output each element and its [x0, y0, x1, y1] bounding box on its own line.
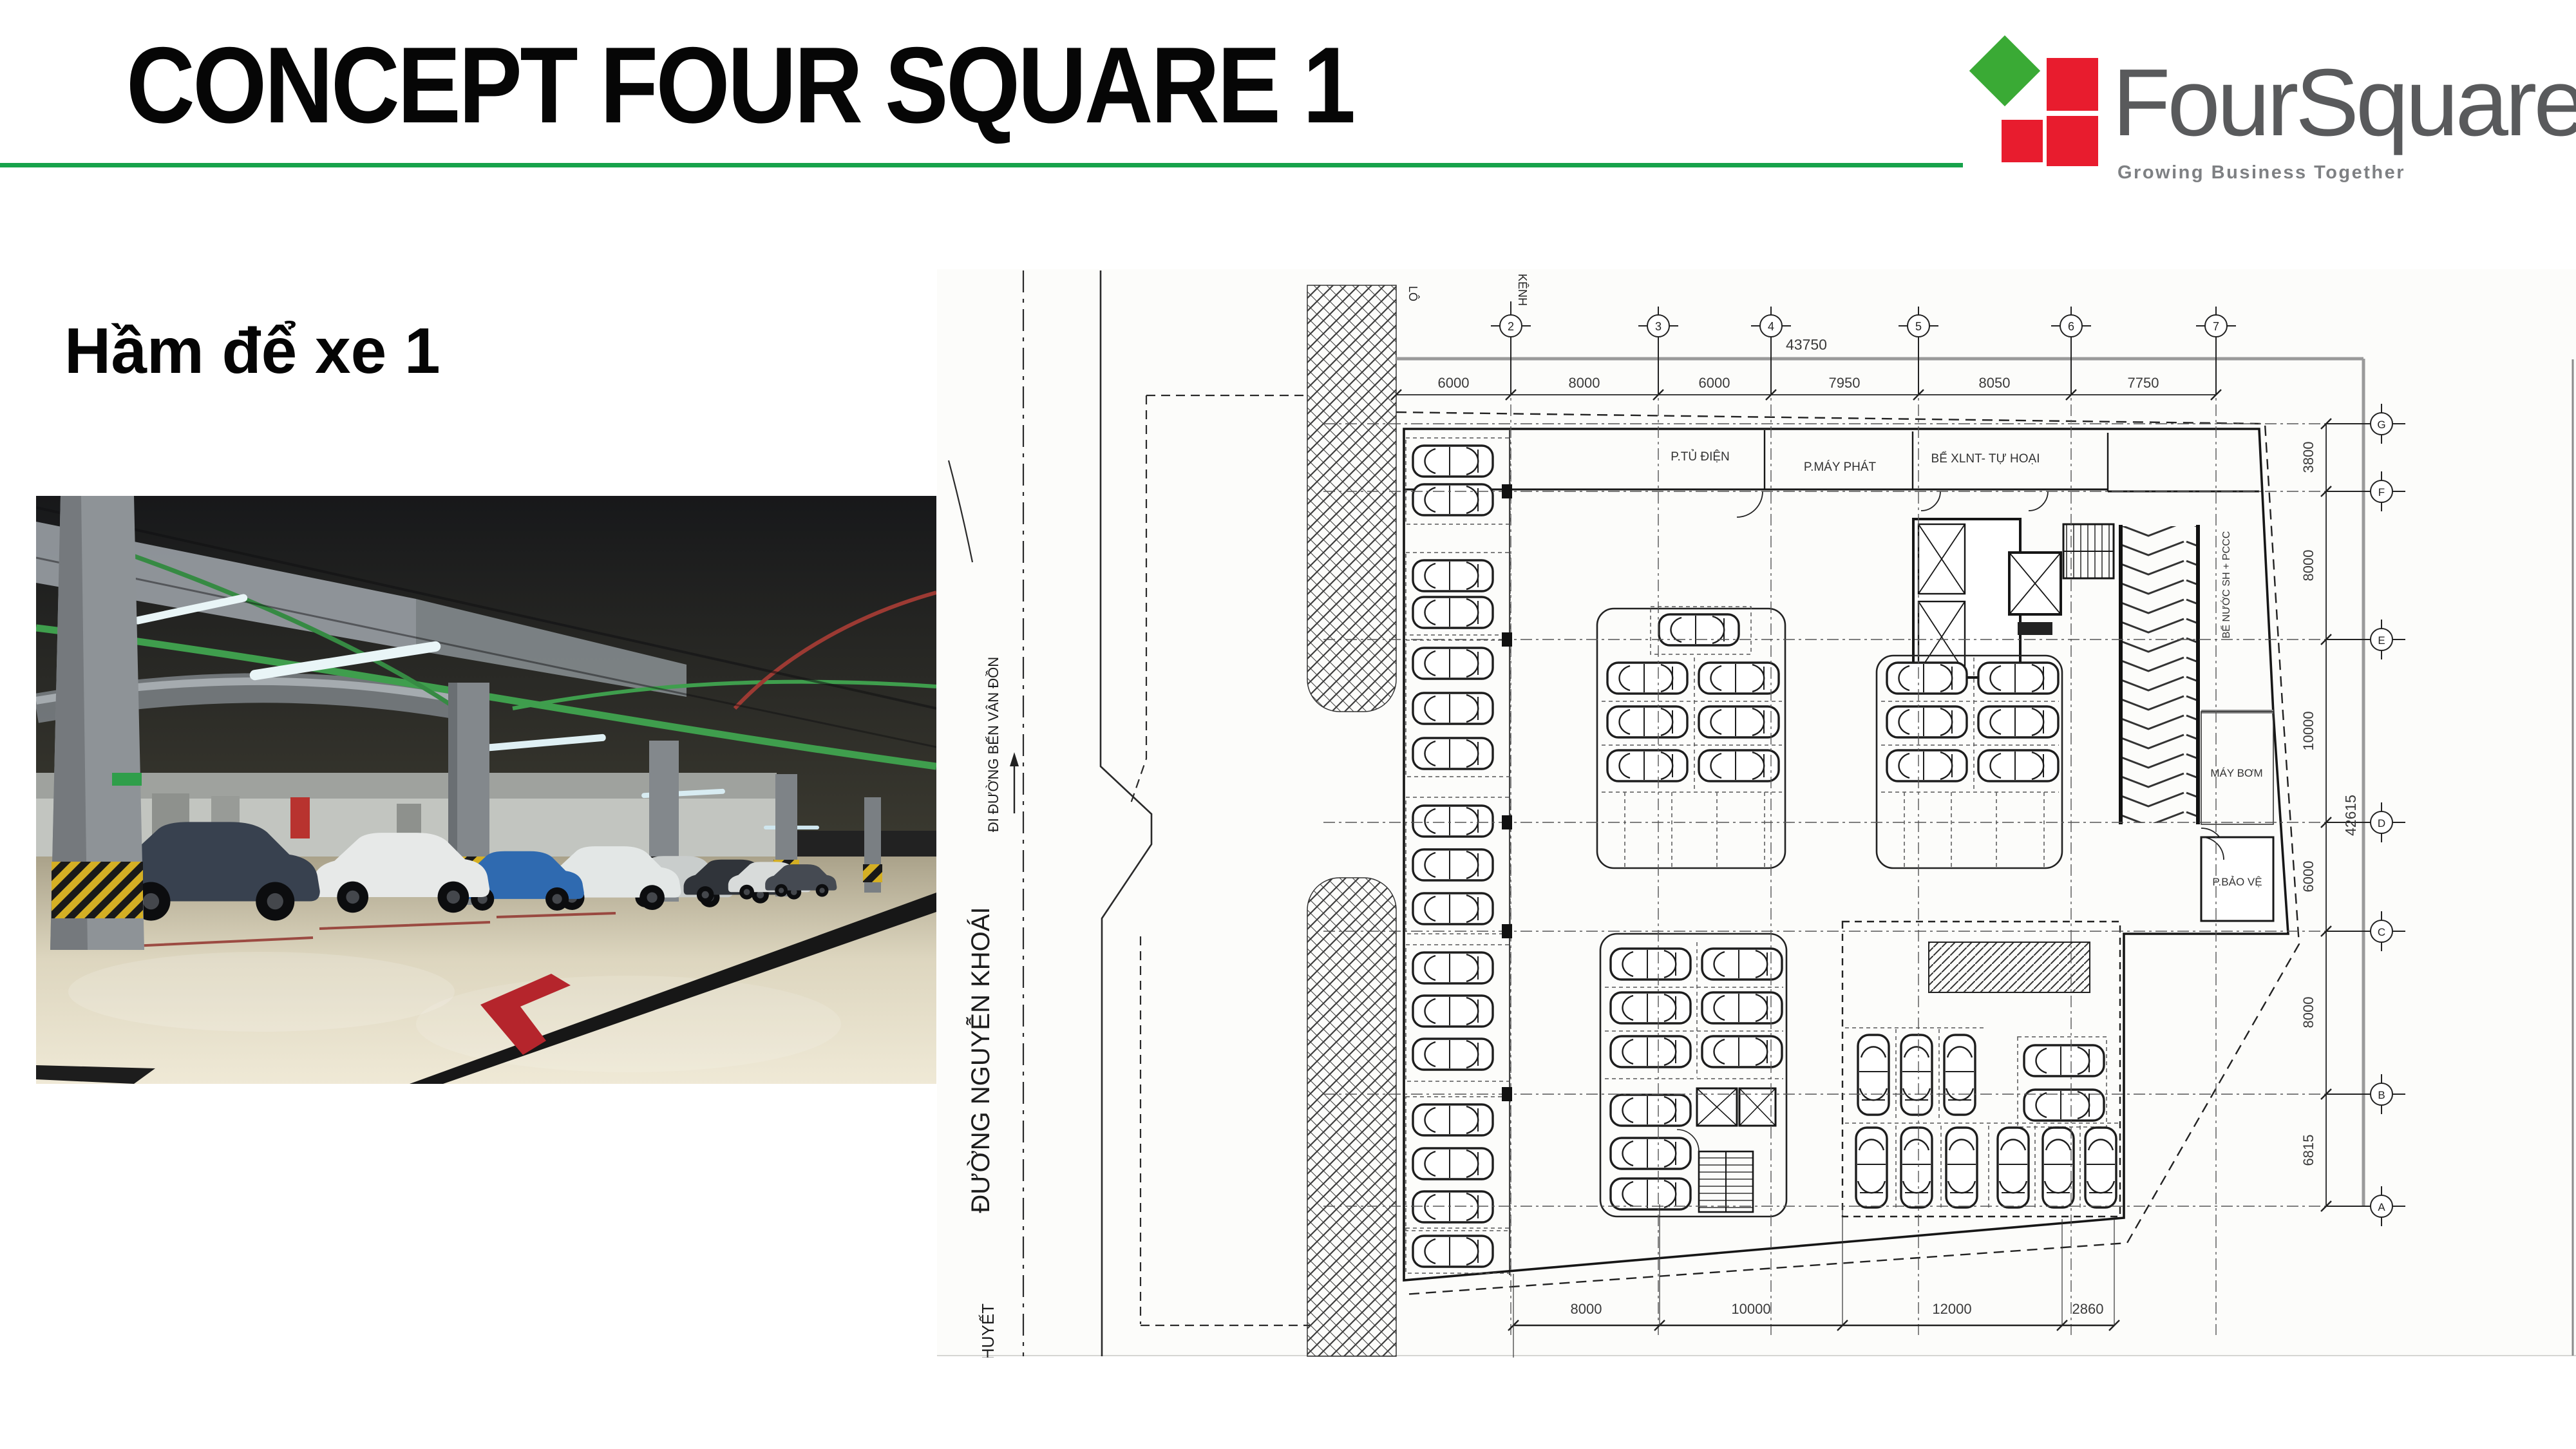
axis-bubble-label: D: [2378, 817, 2385, 829]
span-dimension: 6000: [1699, 375, 1730, 391]
overall-width-dimension: 43750: [1786, 336, 1827, 353]
span-dimension: 10000: [1731, 1301, 1770, 1317]
logo-wordmark: FourSquare: [2112, 55, 2576, 151]
basement-floor-plan: P.TỦ ĐIỆN P.MÁY PHÁT BỂ XLNT- TỰ HOẠI: [937, 269, 2576, 1358]
axis-bubble-label: 3: [1655, 320, 1662, 333]
span-dimension: 7750: [2128, 375, 2159, 391]
span-dimension: 12000: [1932, 1301, 1971, 1317]
axis-bubble-label: 2: [1508, 320, 1514, 333]
room-label-septic: BỂ XLNT- TỰ HOẠI: [1931, 451, 2040, 466]
axis-bubble-label: C: [2378, 926, 2385, 938]
lot-label: KÊNH: [1516, 274, 1529, 306]
section-subtitle: Hầm để xe 1: [64, 314, 440, 388]
photo-art: [36, 496, 936, 1084]
room-label-water-tank: BỂ NƯỚC SH + PCCC: [2220, 531, 2232, 639]
span-dimension: 6000: [2300, 861, 2316, 893]
page-title: CONCEPT FOUR SQUARE 1: [126, 23, 1354, 147]
room-label-electrical: P.TỦ ĐIỆN: [1671, 450, 1730, 464]
span-dimension: 7950: [1829, 375, 1861, 391]
overall-height-dimension: 42615: [2342, 795, 2359, 836]
axis-bubble-label: E: [2378, 634, 2385, 647]
title-underline: [0, 163, 1963, 167]
logo-square-icon: [2047, 116, 2098, 166]
foreground-column: [50, 496, 144, 950]
slide: CONCEPT FOUR SQUARE 1 FourSquare Growing…: [0, 0, 2576, 1449]
span-dimension: 8000: [2300, 550, 2316, 582]
span-dimension: 10000: [2300, 711, 2316, 750]
room-label-generator: P.MÁY PHÁT: [1804, 460, 1877, 474]
axis-bubble-label: 7: [2213, 320, 2219, 333]
plan-paper: [937, 269, 2576, 1356]
logo-diamond-icon: [1969, 35, 2040, 106]
logo-square-icon: [2002, 120, 2043, 162]
span-dimension: 3800: [2300, 442, 2316, 473]
span-dimension: 6000: [1438, 375, 1470, 391]
axis-bubble-label: A: [2378, 1201, 2385, 1213]
span-dimension: 8000: [2300, 997, 2316, 1028]
room-label-pump: MÁY BƠM: [2210, 767, 2262, 779]
parking-garage-photo: [36, 496, 936, 1084]
fire-cabinet: [290, 797, 310, 838]
axis-bubble-label: B: [2378, 1089, 2385, 1101]
street-label-direction: ĐI ĐƯỜNG BẾN VÂN ĐỒN: [985, 657, 1001, 832]
street-label-main: ĐƯỜNG NGUYỄN KHOÁI: [965, 907, 995, 1213]
axis-bubble-label: G: [2377, 419, 2385, 431]
axis-bubble-label: 6: [2068, 320, 2074, 333]
logo-tagline: Growing Business Together: [2117, 162, 2405, 184]
span-dimension: 6815: [2300, 1135, 2316, 1166]
logo-square-icon: [2047, 58, 2098, 111]
axis-bubble-label: F: [2378, 486, 2385, 498]
room-label-security: P.BẢO VỆ: [2212, 876, 2262, 888]
axis-bubble-label: 4: [1768, 320, 1774, 333]
span-dimension: 8050: [1979, 375, 2011, 391]
street-label-partial: HUYẾT: [978, 1303, 998, 1358]
lot-label: LÔ: [1406, 286, 1420, 301]
company-logo: FourSquare Growing Business Together: [1964, 19, 2557, 193]
span-dimension: 2860: [2072, 1301, 2104, 1317]
span-dimension: 8000: [1569, 375, 1600, 391]
axis-bubble-label: 5: [1915, 320, 1922, 333]
span-dimension: 8000: [1571, 1301, 1602, 1317]
